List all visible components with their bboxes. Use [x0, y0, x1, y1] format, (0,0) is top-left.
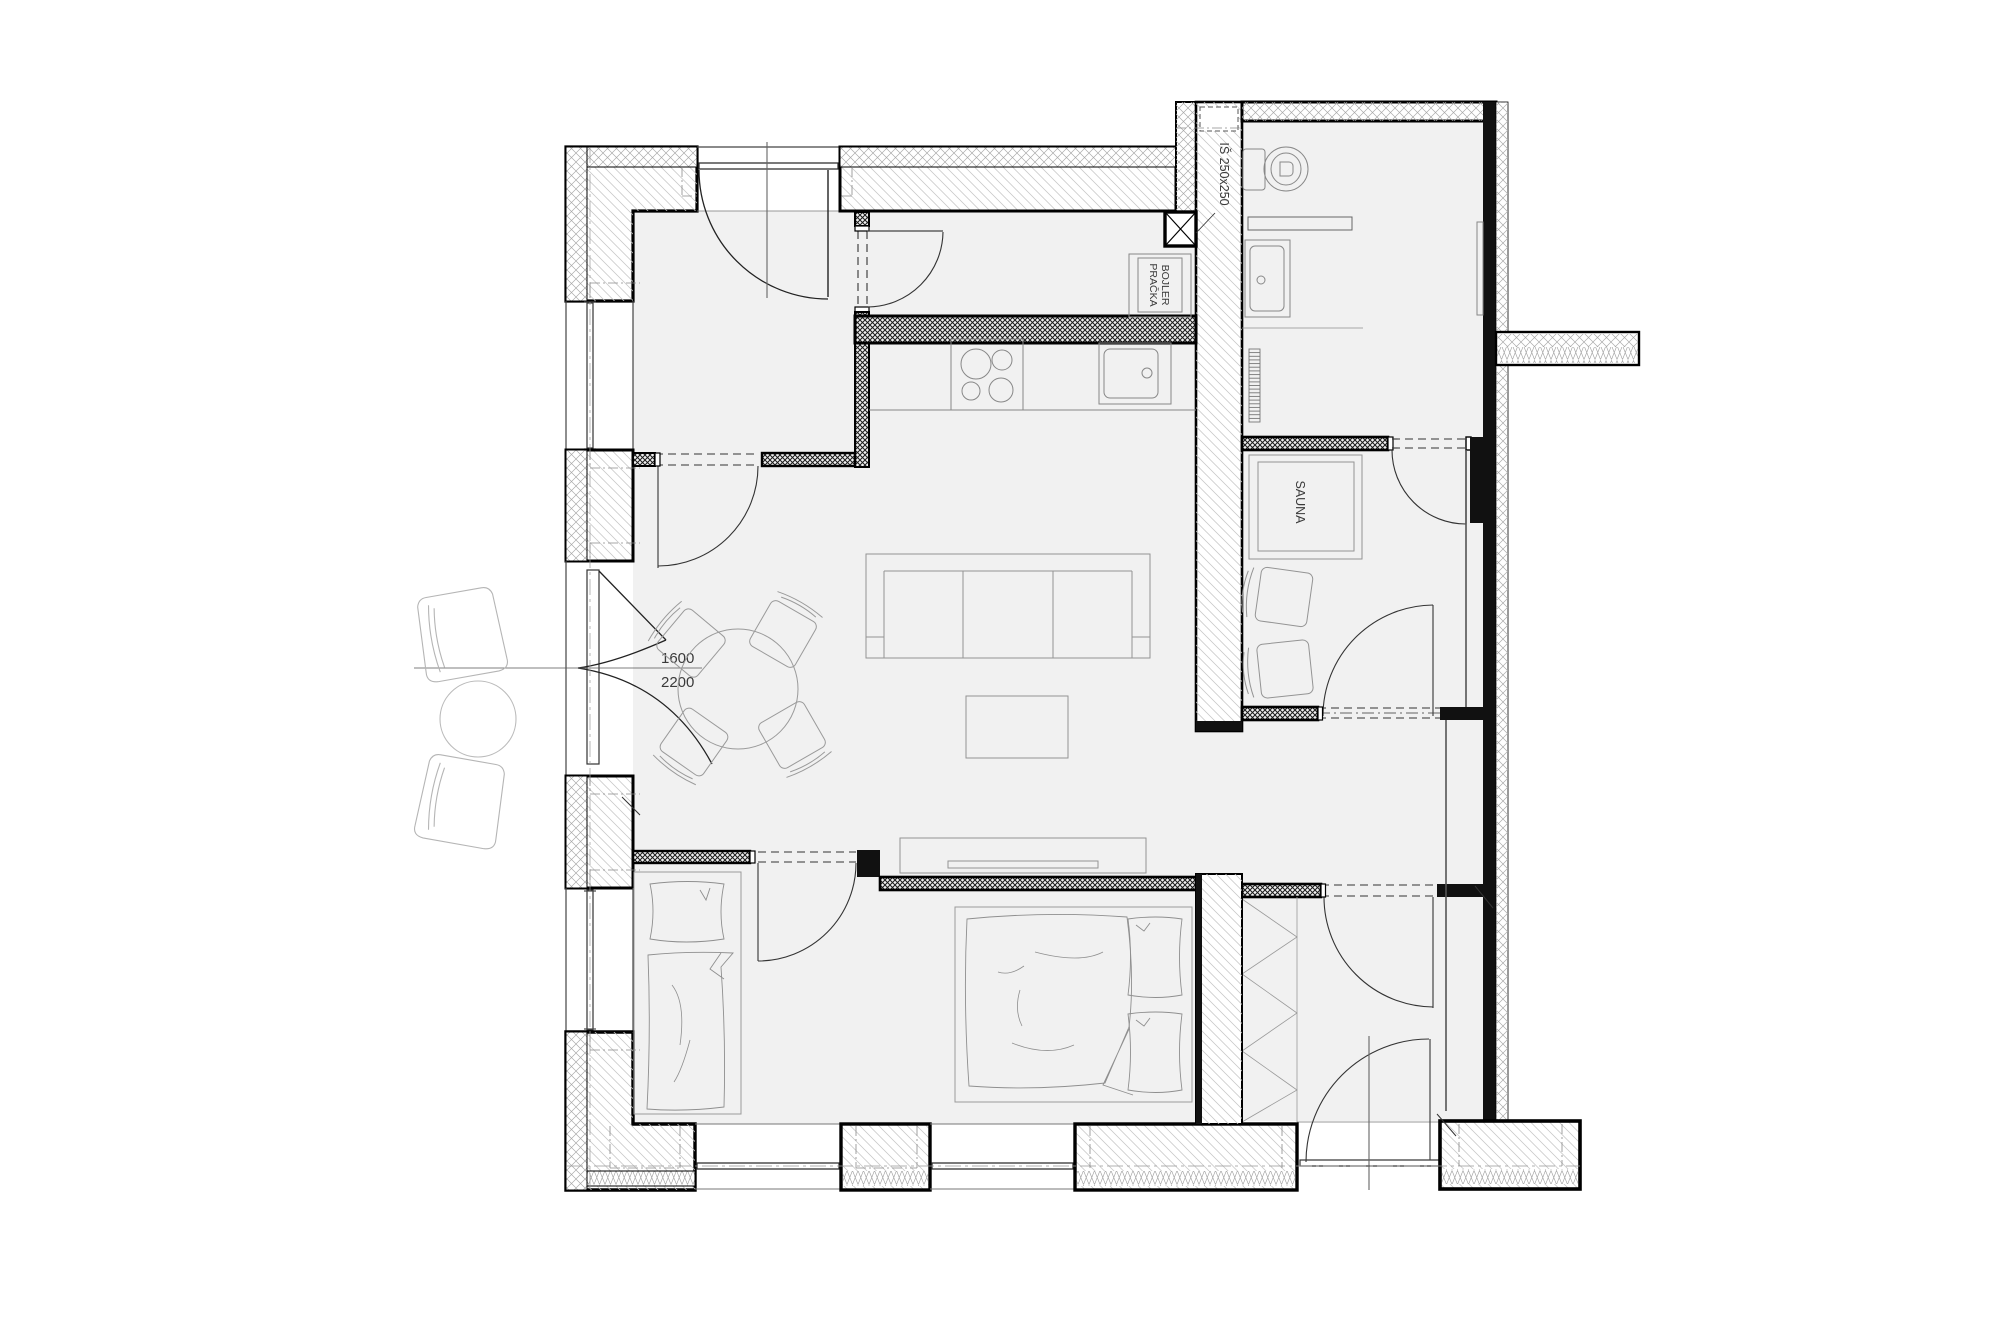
svg-text:SAUNA: SAUNA — [1293, 480, 1307, 524]
svg-text:1600: 1600 — [661, 650, 694, 667]
svg-text:IŠ 250x250: IŠ 250x250 — [1217, 142, 1232, 205]
svg-text:BOJLER: BOJLER — [1159, 265, 1171, 306]
svg-text:PRAČKA: PRAČKA — [1147, 263, 1160, 306]
